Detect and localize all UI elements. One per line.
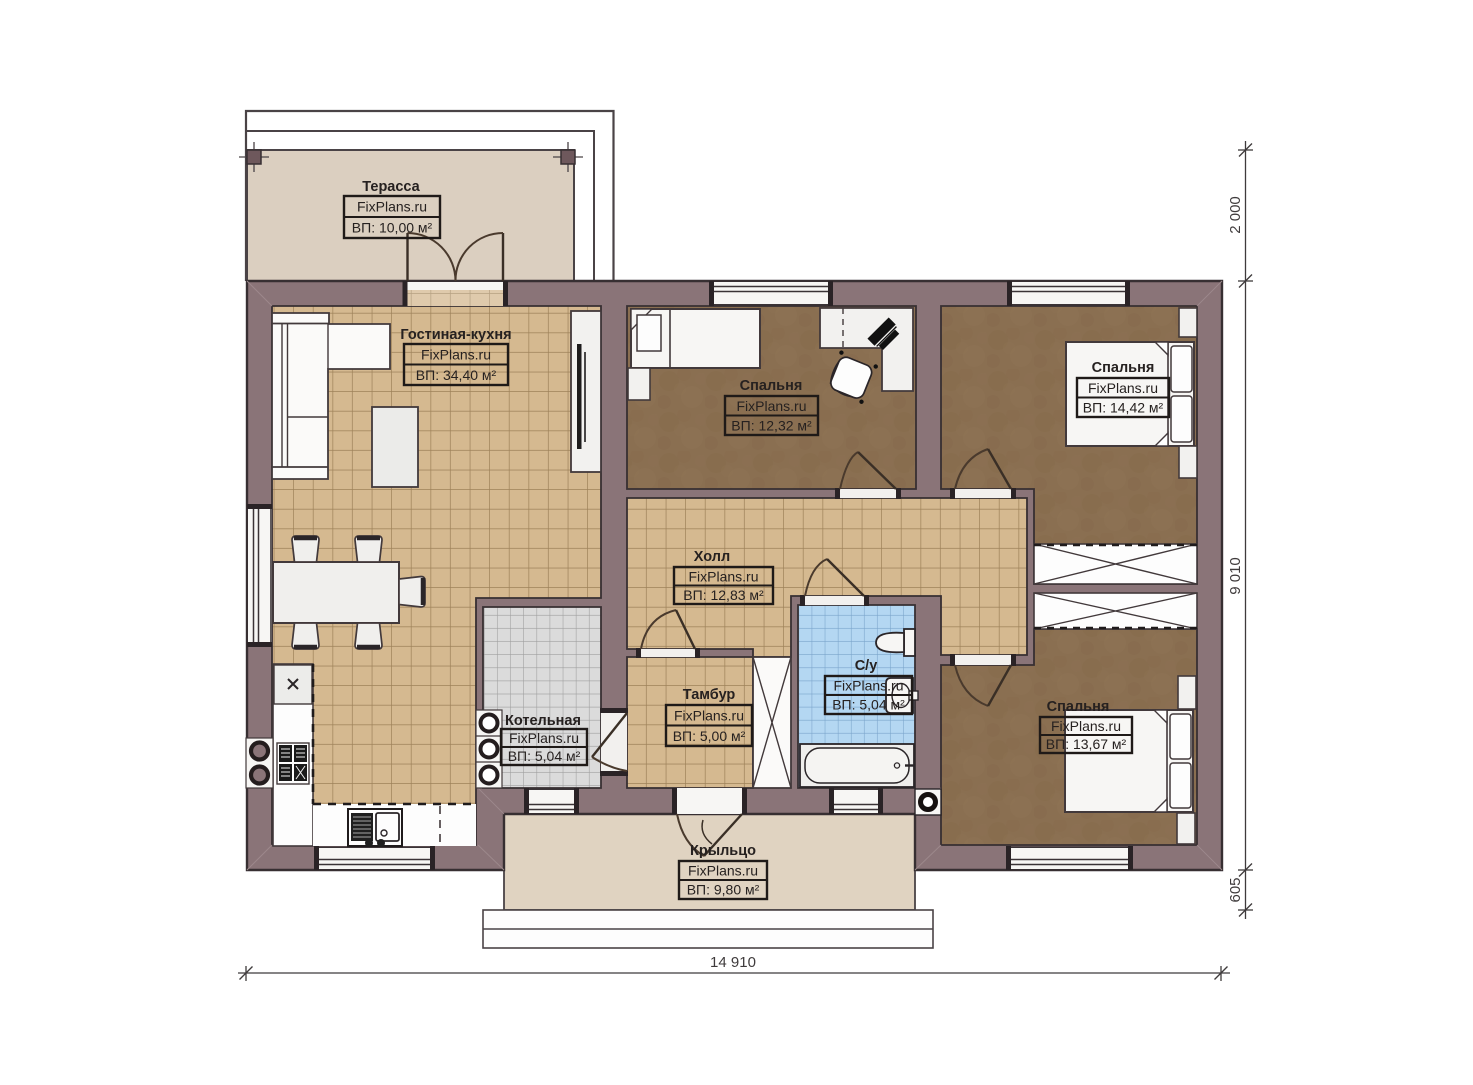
svg-text:Терасса: Терасса — [362, 179, 420, 195]
svg-text:FixPlans.ru: FixPlans.ru — [1051, 718, 1121, 734]
svg-text:FixPlans.ru: FixPlans.ru — [736, 398, 806, 414]
svg-text:ВП: 14,42 м²: ВП: 14,42 м² — [1083, 399, 1164, 415]
svg-text:ВП: 5,00 м²: ВП: 5,00 м² — [673, 728, 746, 744]
svg-text:ВП: 34,40 м²: ВП: 34,40 м² — [416, 367, 497, 383]
svg-text:FixPlans.ru: FixPlans.ru — [509, 730, 579, 746]
svg-text:Гостиная-кухня: Гостиная-кухня — [400, 327, 511, 343]
svg-text:ВП: 5,04 м²: ВП: 5,04 м² — [508, 748, 581, 764]
svg-text:С/у: С/у — [855, 658, 878, 674]
svg-text:FixPlans.ru: FixPlans.ru — [833, 678, 903, 694]
svg-text:ВП: 5,04 м²: ВП: 5,04 м² — [832, 697, 905, 713]
svg-text:605: 605 — [1227, 877, 1244, 902]
svg-text:FixPlans.ru: FixPlans.ru — [1088, 380, 1158, 396]
svg-text:9 010: 9 010 — [1227, 557, 1244, 595]
svg-text:FixPlans.ru: FixPlans.ru — [357, 199, 427, 215]
svg-text:Котельная: Котельная — [505, 713, 581, 729]
svg-text:ВП: 9,80 м²: ВП: 9,80 м² — [687, 882, 760, 898]
svg-text:ВП: 13,67 м²: ВП: 13,67 м² — [1046, 736, 1127, 752]
svg-text:FixPlans.ru: FixPlans.ru — [688, 568, 758, 584]
svg-text:ВП: 12,83 м²: ВП: 12,83 м² — [683, 587, 764, 603]
svg-text:ВП: 10,00 м²: ВП: 10,00 м² — [352, 220, 433, 236]
svg-text:FixPlans.ru: FixPlans.ru — [688, 863, 758, 879]
svg-text:Холл: Холл — [694, 549, 730, 565]
svg-text:FixPlans.ru: FixPlans.ru — [421, 346, 491, 362]
svg-text:Тамбур: Тамбур — [683, 687, 736, 703]
svg-text:Спальня: Спальня — [1092, 360, 1155, 376]
svg-text:14 910: 14 910 — [710, 954, 756, 971]
svg-text:Спальня: Спальня — [1047, 699, 1110, 715]
svg-text:2 000: 2 000 — [1227, 196, 1244, 234]
svg-text:Спальня: Спальня — [740, 378, 803, 394]
svg-text:FixPlans.ru: FixPlans.ru — [674, 707, 744, 723]
svg-text:Крыльцо: Крыльцо — [690, 843, 756, 859]
svg-text:ВП: 12,32 м²: ВП: 12,32 м² — [731, 417, 812, 433]
